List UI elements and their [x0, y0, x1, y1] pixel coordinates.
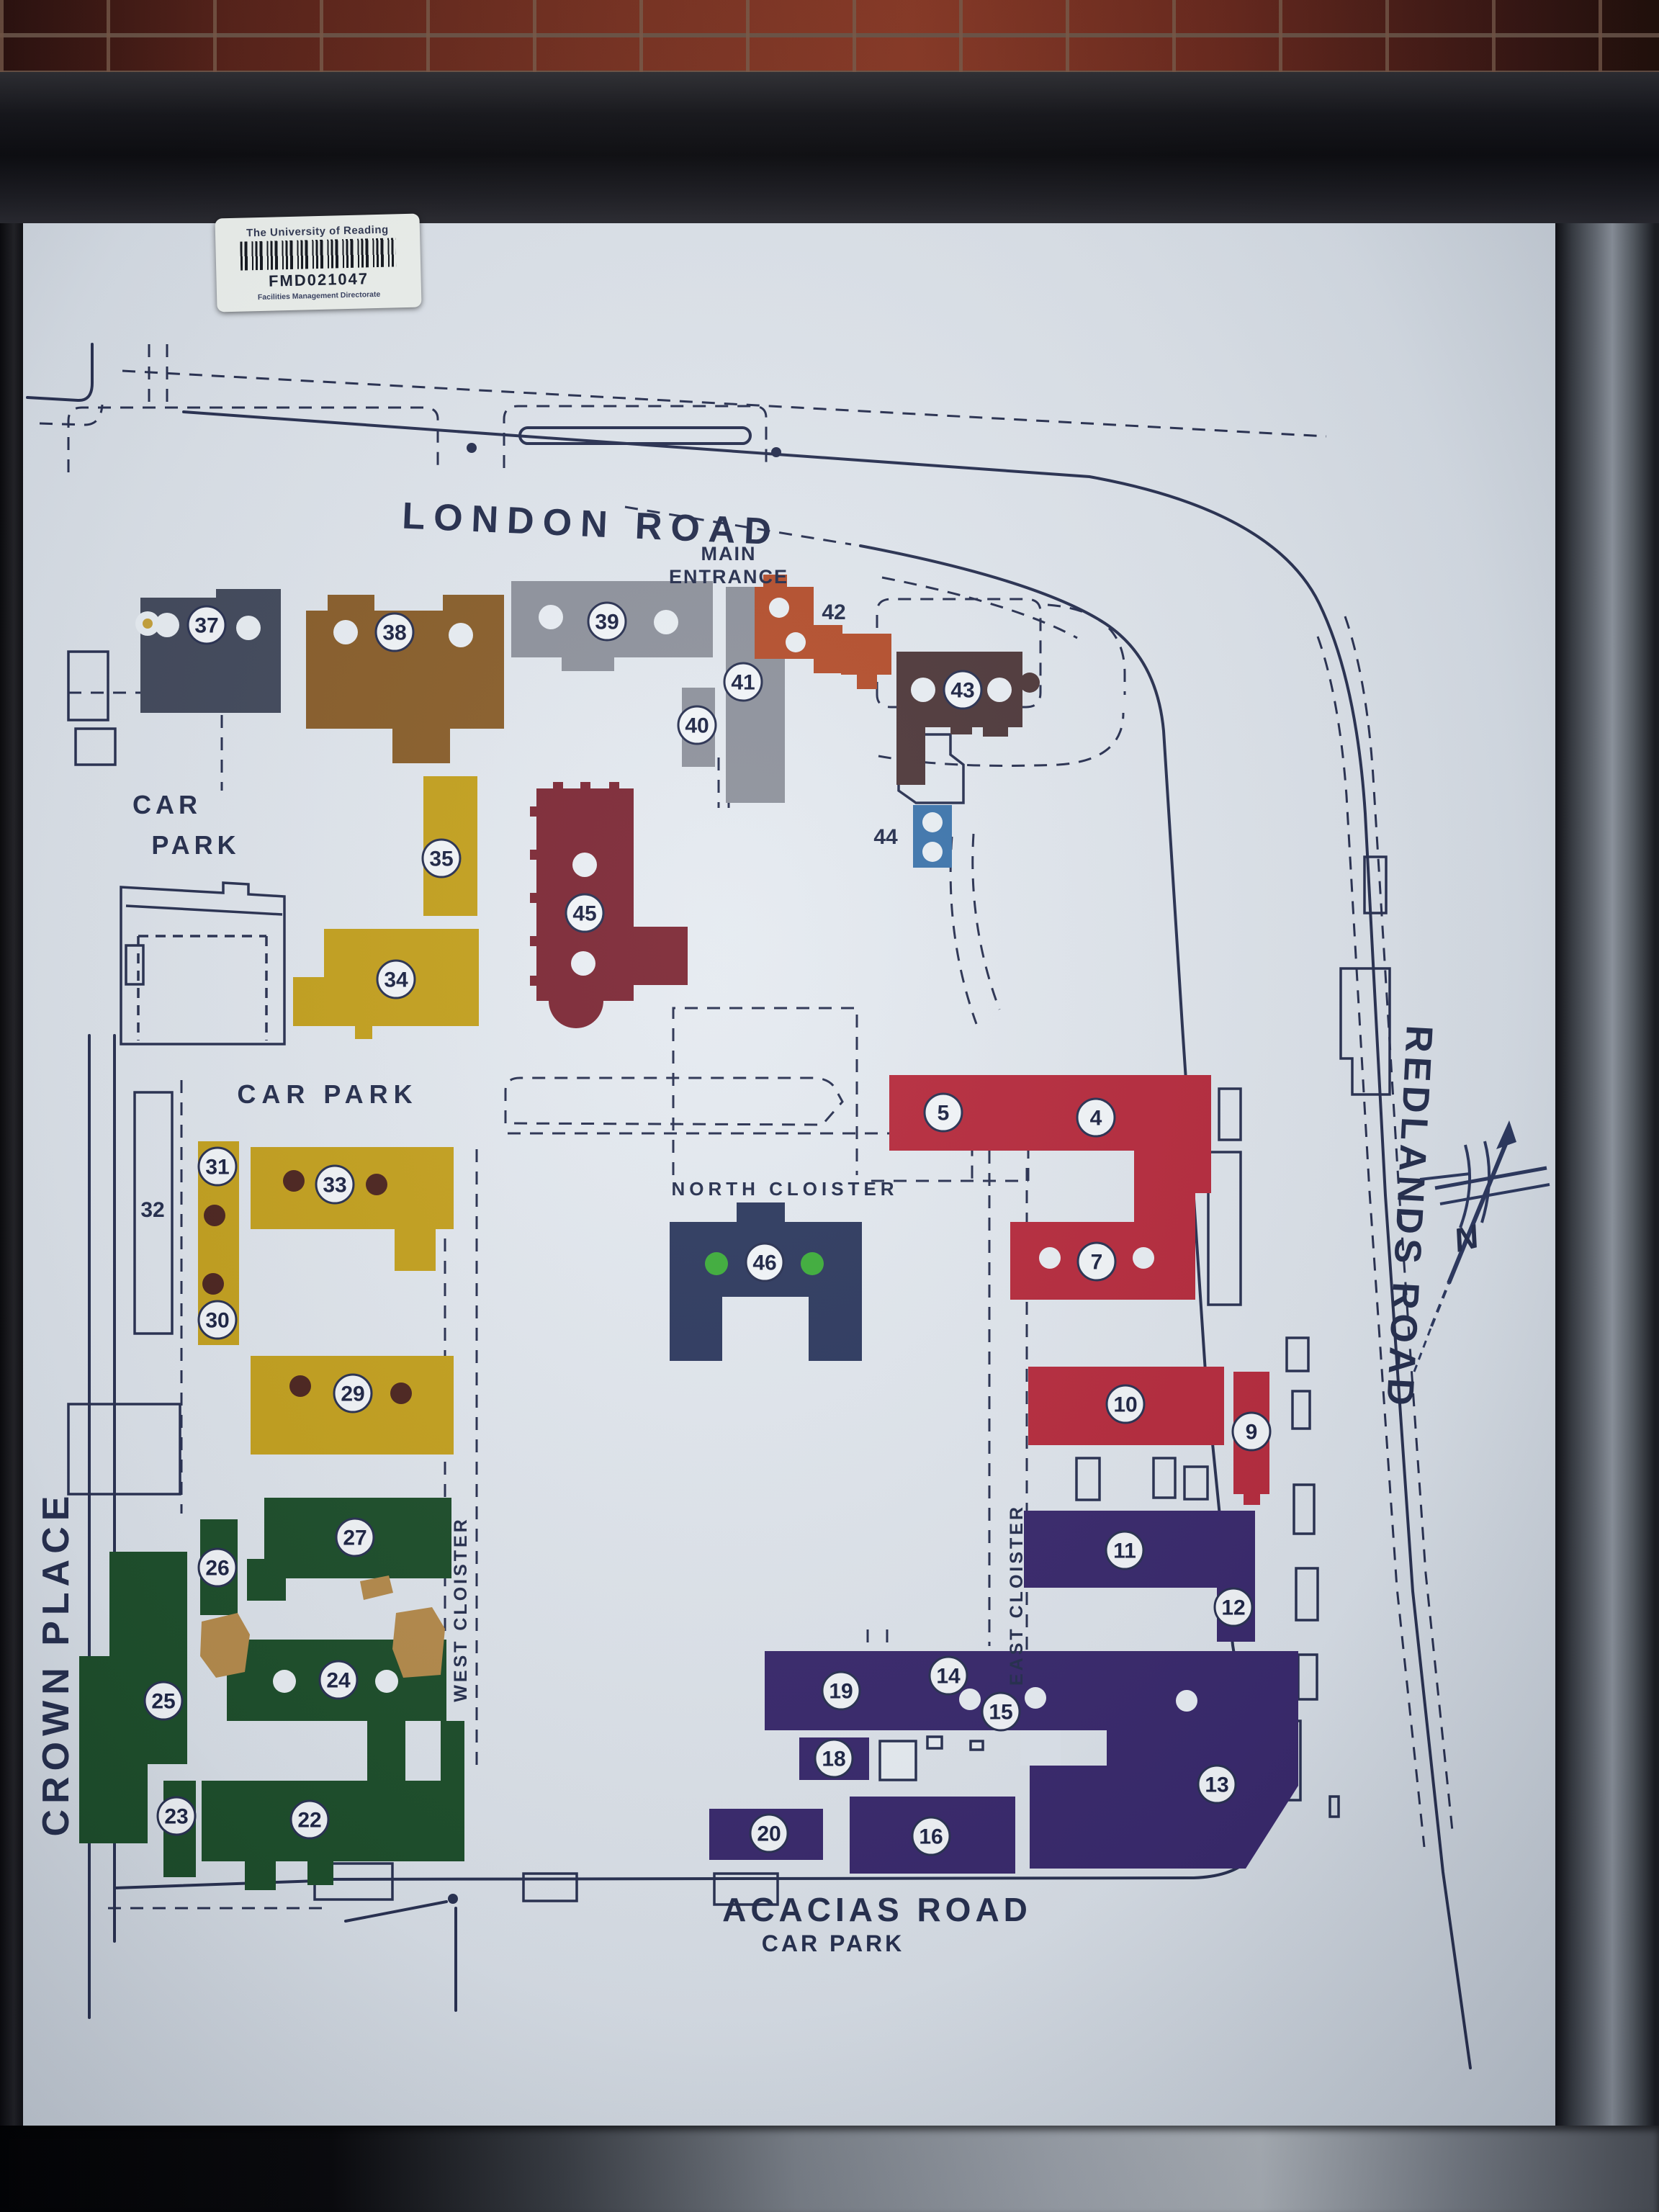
svg-text:14: 14: [936, 1665, 961, 1689]
svg-text:15: 15: [989, 1701, 1012, 1725]
building-32-label: 32: [140, 1198, 164, 1222]
svg-text:5: 5: [938, 1102, 950, 1125]
svg-text:46: 46: [752, 1251, 776, 1275]
svg-text:4: 4: [1090, 1107, 1102, 1130]
building-44-label: 44: [873, 825, 898, 849]
svg-text:13: 13: [1205, 1773, 1228, 1797]
svg-text:23: 23: [164, 1805, 188, 1829]
car-park-nw-label-1: CAR: [132, 790, 202, 819]
road-label-acacias: ACACIAS ROAD: [722, 1891, 1032, 1928]
svg-text:41: 41: [731, 671, 755, 695]
svg-text:24: 24: [326, 1669, 351, 1693]
campus-map-sign-photo: 37 38 39 40 41 43 35 34 45 46 31 30 33 2…: [0, 0, 1659, 2212]
sticker-asset-code: FMD021047: [269, 269, 369, 290]
svg-text:35: 35: [429, 848, 453, 871]
svg-text:40: 40: [685, 714, 709, 738]
svg-text:33: 33: [323, 1174, 346, 1197]
svg-text:34: 34: [384, 968, 408, 992]
east-cloister-label: EAST CLOISTER: [1007, 1504, 1027, 1686]
svg-text:20: 20: [757, 1822, 781, 1846]
main-entrance-label-2: ENTRANCE: [669, 566, 788, 588]
compass-north-icon: [1414, 1120, 1550, 1372]
svg-text:12: 12: [1221, 1596, 1245, 1620]
svg-text:27: 27: [343, 1527, 367, 1550]
svg-text:43: 43: [950, 679, 974, 703]
north-cloister-label: NORTH CLOISTER: [671, 1178, 898, 1200]
barcode: [240, 238, 396, 270]
purple-notch: [1020, 1730, 1061, 1766]
yellow-pin: [143, 619, 153, 629]
car-park-nw-label-2: PARK: [151, 830, 240, 860]
campus-map: 37 38 39 40 41 43 35 34 45 46 31 30 33 2…: [0, 0, 1659, 2212]
svg-text:25: 25: [151, 1690, 175, 1714]
car-park-south-label: CAR PARK: [762, 1930, 905, 1956]
main-entrance-label-1: MAIN: [701, 543, 757, 565]
svg-text:31: 31: [205, 1156, 229, 1179]
svg-text:30: 30: [205, 1309, 229, 1333]
asset-sticker: The University of Reading FMD021047 Faci…: [215, 214, 421, 313]
west-cloister-label: WEST CLOISTER: [451, 1516, 471, 1702]
svg-text:37: 37: [194, 614, 218, 638]
svg-text:11: 11: [1113, 1539, 1136, 1563]
svg-text:18: 18: [822, 1748, 845, 1771]
buildings-green: [79, 1498, 464, 1890]
road-label-crown-place: CROWN PLACE: [35, 1491, 77, 1837]
svg-text:29: 29: [341, 1382, 364, 1406]
svg-text:45: 45: [572, 902, 596, 926]
buildings-yellow: [198, 776, 479, 1455]
car-park-mid-label: CAR PARK: [237, 1079, 418, 1109]
svg-text:39: 39: [595, 611, 619, 634]
sticker-org-name: The University of Reading: [246, 224, 389, 240]
building-45-church: [530, 782, 688, 1028]
svg-text:9: 9: [1246, 1421, 1258, 1444]
buildings-crimson: [889, 1075, 1269, 1505]
compass-n-label: N: [1450, 1217, 1483, 1259]
white-court-outline: [880, 1737, 983, 1780]
svg-text:22: 22: [297, 1809, 321, 1833]
svg-text:26: 26: [205, 1557, 229, 1581]
building-42-label: 42: [822, 601, 845, 624]
svg-text:19: 19: [829, 1680, 853, 1704]
svg-text:7: 7: [1091, 1251, 1103, 1274]
sticker-department: Facilities Management Directorate: [258, 290, 381, 302]
svg-text:10: 10: [1113, 1393, 1137, 1417]
svg-text:38: 38: [382, 621, 406, 645]
svg-text:16: 16: [919, 1825, 943, 1849]
